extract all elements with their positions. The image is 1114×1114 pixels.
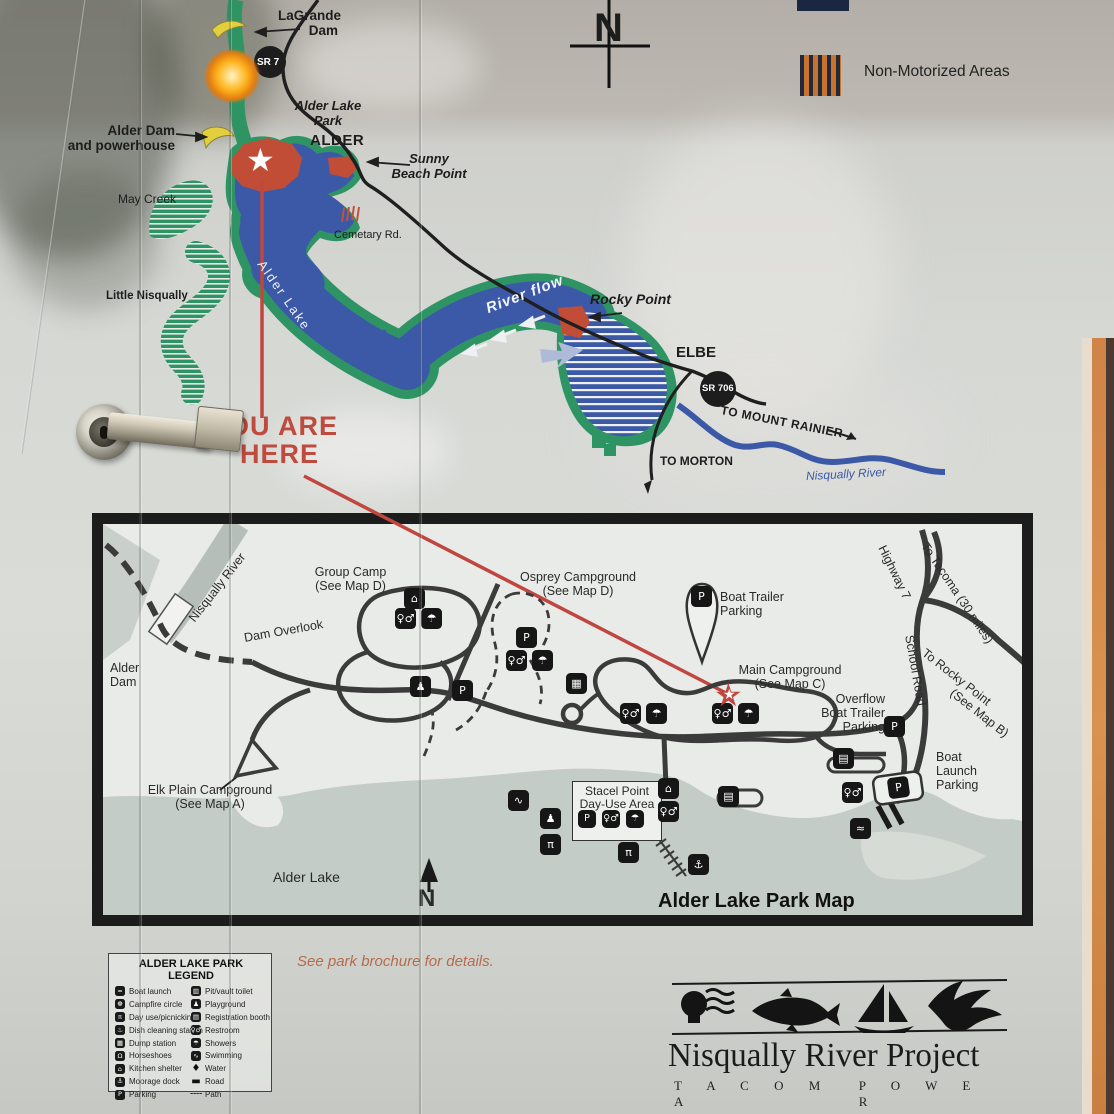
morton-arrow — [644, 480, 652, 494]
non-motorized-label: Non-Motorized Areas — [864, 63, 1010, 80]
trails-dashed — [424, 593, 549, 756]
water-icon: ♦ — [191, 1064, 201, 1074]
sign-photo: N Non-Motorized Areas LaGrande Dam SR 7 … — [0, 0, 1114, 1114]
moorage-dock-icon: ⚓ — [115, 1077, 125, 1087]
parking-icon: P — [516, 627, 537, 648]
light-glare — [204, 50, 260, 102]
plexiglass-seam — [229, 0, 231, 1114]
osprey-label: Osprey Campground (See Map D) — [498, 570, 658, 598]
kitchen-shelter-icon: ⌂ — [404, 588, 425, 609]
legend-title: ALDER LAKE PARK LEGEND — [115, 958, 267, 982]
playground-icon: ♟ — [540, 808, 561, 829]
restroom-icon: ♀♂ — [191, 1025, 201, 1035]
brochure-note: See park brochure for details. — [297, 954, 494, 971]
legend-item: ≈Boat launch — [115, 985, 191, 998]
legend-item: ☸Campfire circle — [115, 998, 191, 1011]
park-map-title: Alder Lake Park Map — [658, 890, 855, 912]
dam-hill — [103, 524, 160, 660]
registration-booth-icon: ▤ — [191, 1012, 201, 1022]
legend-item: ⚓Moorage dock — [115, 1075, 191, 1088]
dump-station-icon: ▦ — [566, 673, 587, 694]
boat-launch-icon: ≈ — [850, 818, 871, 839]
restroom-icon: ♀♂ — [620, 703, 641, 724]
registration-booth-icon: ▤ — [718, 786, 739, 807]
to-morton-label: TO MORTON — [660, 455, 733, 468]
stacel-point-label: Stacel Point Day-Use Area — [573, 782, 661, 811]
stacel-parking-icon: P — [578, 810, 596, 828]
group-camp-label: Group Camp (See Map D) — [298, 565, 403, 593]
picnic-icon: π — [618, 842, 639, 863]
non-motorized-swatch — [800, 55, 841, 96]
kitchen-shelter-icon: ⌂ — [115, 1064, 125, 1074]
dump-station-icon: ▦ — [115, 1038, 125, 1048]
park-alder-dam-label: Alder Dam — [110, 661, 139, 689]
frame-edge-orange — [1092, 338, 1106, 1114]
dish-cleaning-icon: ♨ — [115, 1025, 125, 1035]
cul-de-sac — [563, 705, 581, 723]
restroom-icon: ♀♂ — [506, 650, 527, 671]
lagrande-dam-label: LaGrande Dam — [278, 8, 338, 38]
restroom-icon: ♀♂ — [842, 782, 863, 803]
overflow-parking-icon: P — [884, 716, 905, 737]
you-are-here-text: OU ARE HERE — [228, 412, 338, 469]
plexiglass-seam — [139, 0, 141, 1114]
legend-item: ▦Dump station — [115, 1037, 191, 1050]
swimming-icon: ∿ — [508, 790, 529, 811]
may-creek-label: May Creek — [118, 193, 176, 206]
legend-left-column: ≈Boat launch ☸Campfire circle πDay use/p… — [115, 985, 191, 1101]
showers-icon: ☂ — [532, 650, 553, 671]
latch-clasp[interactable] — [194, 406, 244, 453]
horseshoes-icon: Ω — [115, 1051, 125, 1061]
elk-triangle — [236, 740, 276, 776]
path-icon: ╌╌ — [191, 1090, 201, 1100]
project-title: Nisqually River Project — [668, 1037, 1003, 1075]
road-icon: ▬ — [191, 1077, 201, 1087]
eagle-icon — [928, 981, 1002, 1031]
boat-trailer-parking-icon: P — [691, 586, 712, 607]
rocky-point-label: Rocky Point — [590, 292, 671, 308]
legend-item: πDay use/picnicking — [115, 1011, 191, 1024]
legend-item: ⌂Kitchen shelter — [115, 1062, 191, 1075]
restroom-icon: ♀♂ — [395, 608, 416, 629]
swimming-icon: ∿ — [191, 1051, 201, 1061]
alder-town-label: ALDER — [310, 133, 364, 150]
showers-icon: ☂ — [191, 1038, 201, 1048]
picnic-icon: π — [540, 834, 561, 855]
showers-icon: ☂ — [646, 703, 667, 724]
boat-launch-parking-label: Boat Launch Parking — [936, 750, 978, 792]
elbe-label: ELBE — [676, 345, 716, 362]
alder-lake-park-label: Alder Lake Park — [288, 99, 368, 128]
shore-step-blue — [366, 330, 386, 346]
boat-trailer-label: Boat Trailer Parking — [720, 590, 784, 618]
park-alder-lake-label: Alder Lake — [273, 870, 340, 886]
sailboat-icon — [854, 984, 914, 1033]
moorage-anchor-icon: ⚓ — [688, 854, 709, 875]
legend-box: ALDER LAKE PARK LEGEND ≈Boat launch ☸Cam… — [108, 953, 272, 1092]
cul-de-sac-link — [580, 694, 598, 710]
launch-parking-icon: P — [887, 776, 911, 800]
sr7-label: SR 7 — [257, 57, 279, 68]
boat-launch-icon: ≈ — [115, 986, 125, 996]
stacel-showers-icon: ☂ — [626, 810, 644, 828]
shore-step — [604, 444, 616, 456]
stacel-restroom-icon: ♀♂ — [602, 810, 620, 828]
hydro-bulb-icon — [681, 990, 734, 1024]
elk-spur — [252, 690, 310, 740]
elk-plain-label: Elk Plain Campground (See Map A) — [120, 783, 300, 811]
campfire-icon: ☸ — [115, 999, 125, 1009]
little-nisqually-arm — [172, 252, 219, 394]
little-nisqually-label: Little Nisqually — [106, 290, 188, 303]
legend-item: ΩHorseshoes — [115, 1049, 191, 1062]
frame-edge-dark — [1106, 338, 1114, 1114]
sr706-label: SR 706 — [702, 384, 734, 395]
parking-icon: P — [452, 680, 473, 701]
may-creek-arm — [149, 180, 213, 238]
cemetary-rd-label: Cemetary Rd. — [334, 229, 402, 241]
alder-dam-label: Alder Dam and powerhouse — [40, 123, 175, 153]
pit-toilet-icon: ▥ — [191, 986, 201, 996]
parking-icon: P — [115, 1090, 125, 1100]
picnic-icon: π — [115, 1012, 125, 1022]
showers-icon: ☂ — [421, 608, 442, 629]
fish-icon — [752, 988, 840, 1032]
shore-step-blue — [384, 350, 400, 363]
day-use-icon: ⌂ — [658, 778, 679, 799]
playground-icon: ♟ — [191, 999, 201, 1009]
compass-n-label: N — [594, 6, 623, 51]
sunny-beach-label: Sunny Beach Point — [390, 152, 468, 181]
motorized-swatch — [797, 0, 849, 11]
main-campground-star-marker: ★ ★ — [714, 679, 748, 713]
legend-item: ♨Dish cleaning station — [115, 1024, 191, 1037]
map-graphics — [0, 0, 1114, 1114]
company-name: T A C O M A P O W E R — [674, 1078, 1010, 1110]
group-camp-loop2 — [338, 652, 451, 721]
you-are-here-star-icon: ★ — [246, 143, 275, 179]
overflow-label: Overflow Boat Trailer Parking — [795, 692, 885, 734]
plexiglass-seam — [419, 0, 421, 1114]
restroom-icon: ♀♂ — [658, 801, 679, 822]
registration-booth-icon: ▤ — [833, 748, 854, 769]
legend-item: PParking — [115, 1088, 191, 1101]
